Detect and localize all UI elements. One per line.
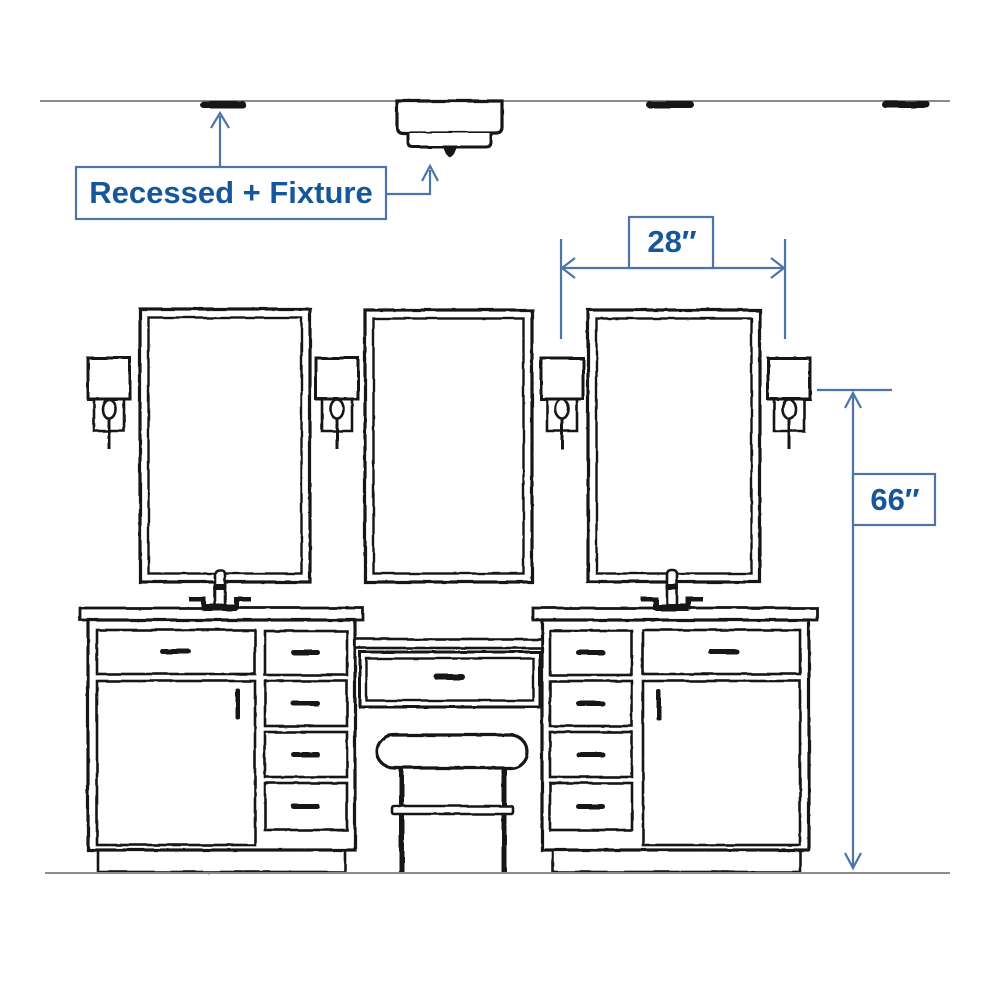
svg-text:28″: 28″ [647,224,696,259]
svg-text:66″: 66″ [870,482,919,517]
svg-text:Recessed + Fixture: Recessed + Fixture [89,175,372,210]
